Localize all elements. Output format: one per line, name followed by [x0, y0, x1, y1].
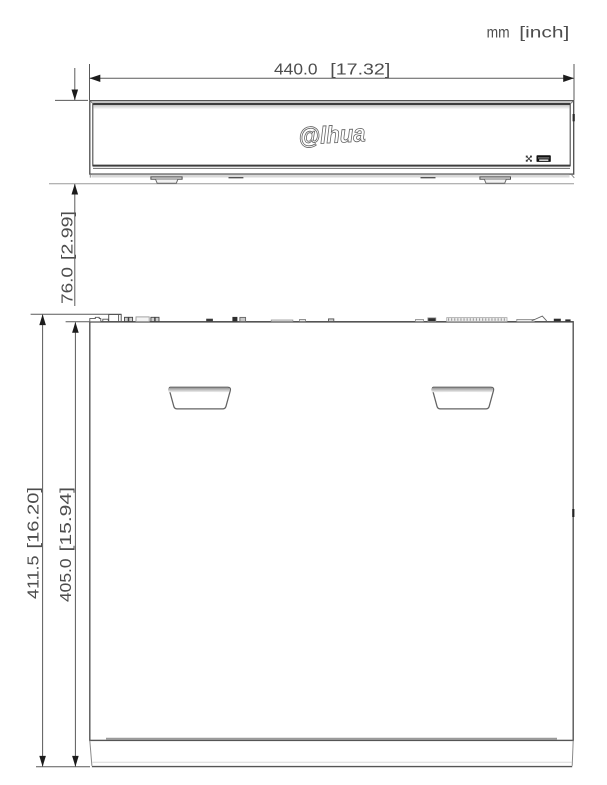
svg-text:76.0[2.99]: 76.0[2.99]	[60, 211, 77, 304]
svg-text:mm[inch]: mm[inch]	[487, 25, 570, 42]
svg-text:@lhua: @lhua	[298, 120, 366, 150]
svg-text:405.0[15.94]: 405.0[15.94]	[58, 487, 75, 602]
svg-text:411.5[16.20]: 411.5[16.20]	[26, 487, 43, 599]
svg-text:440.0[17.32]: 440.0[17.32]	[274, 61, 390, 78]
